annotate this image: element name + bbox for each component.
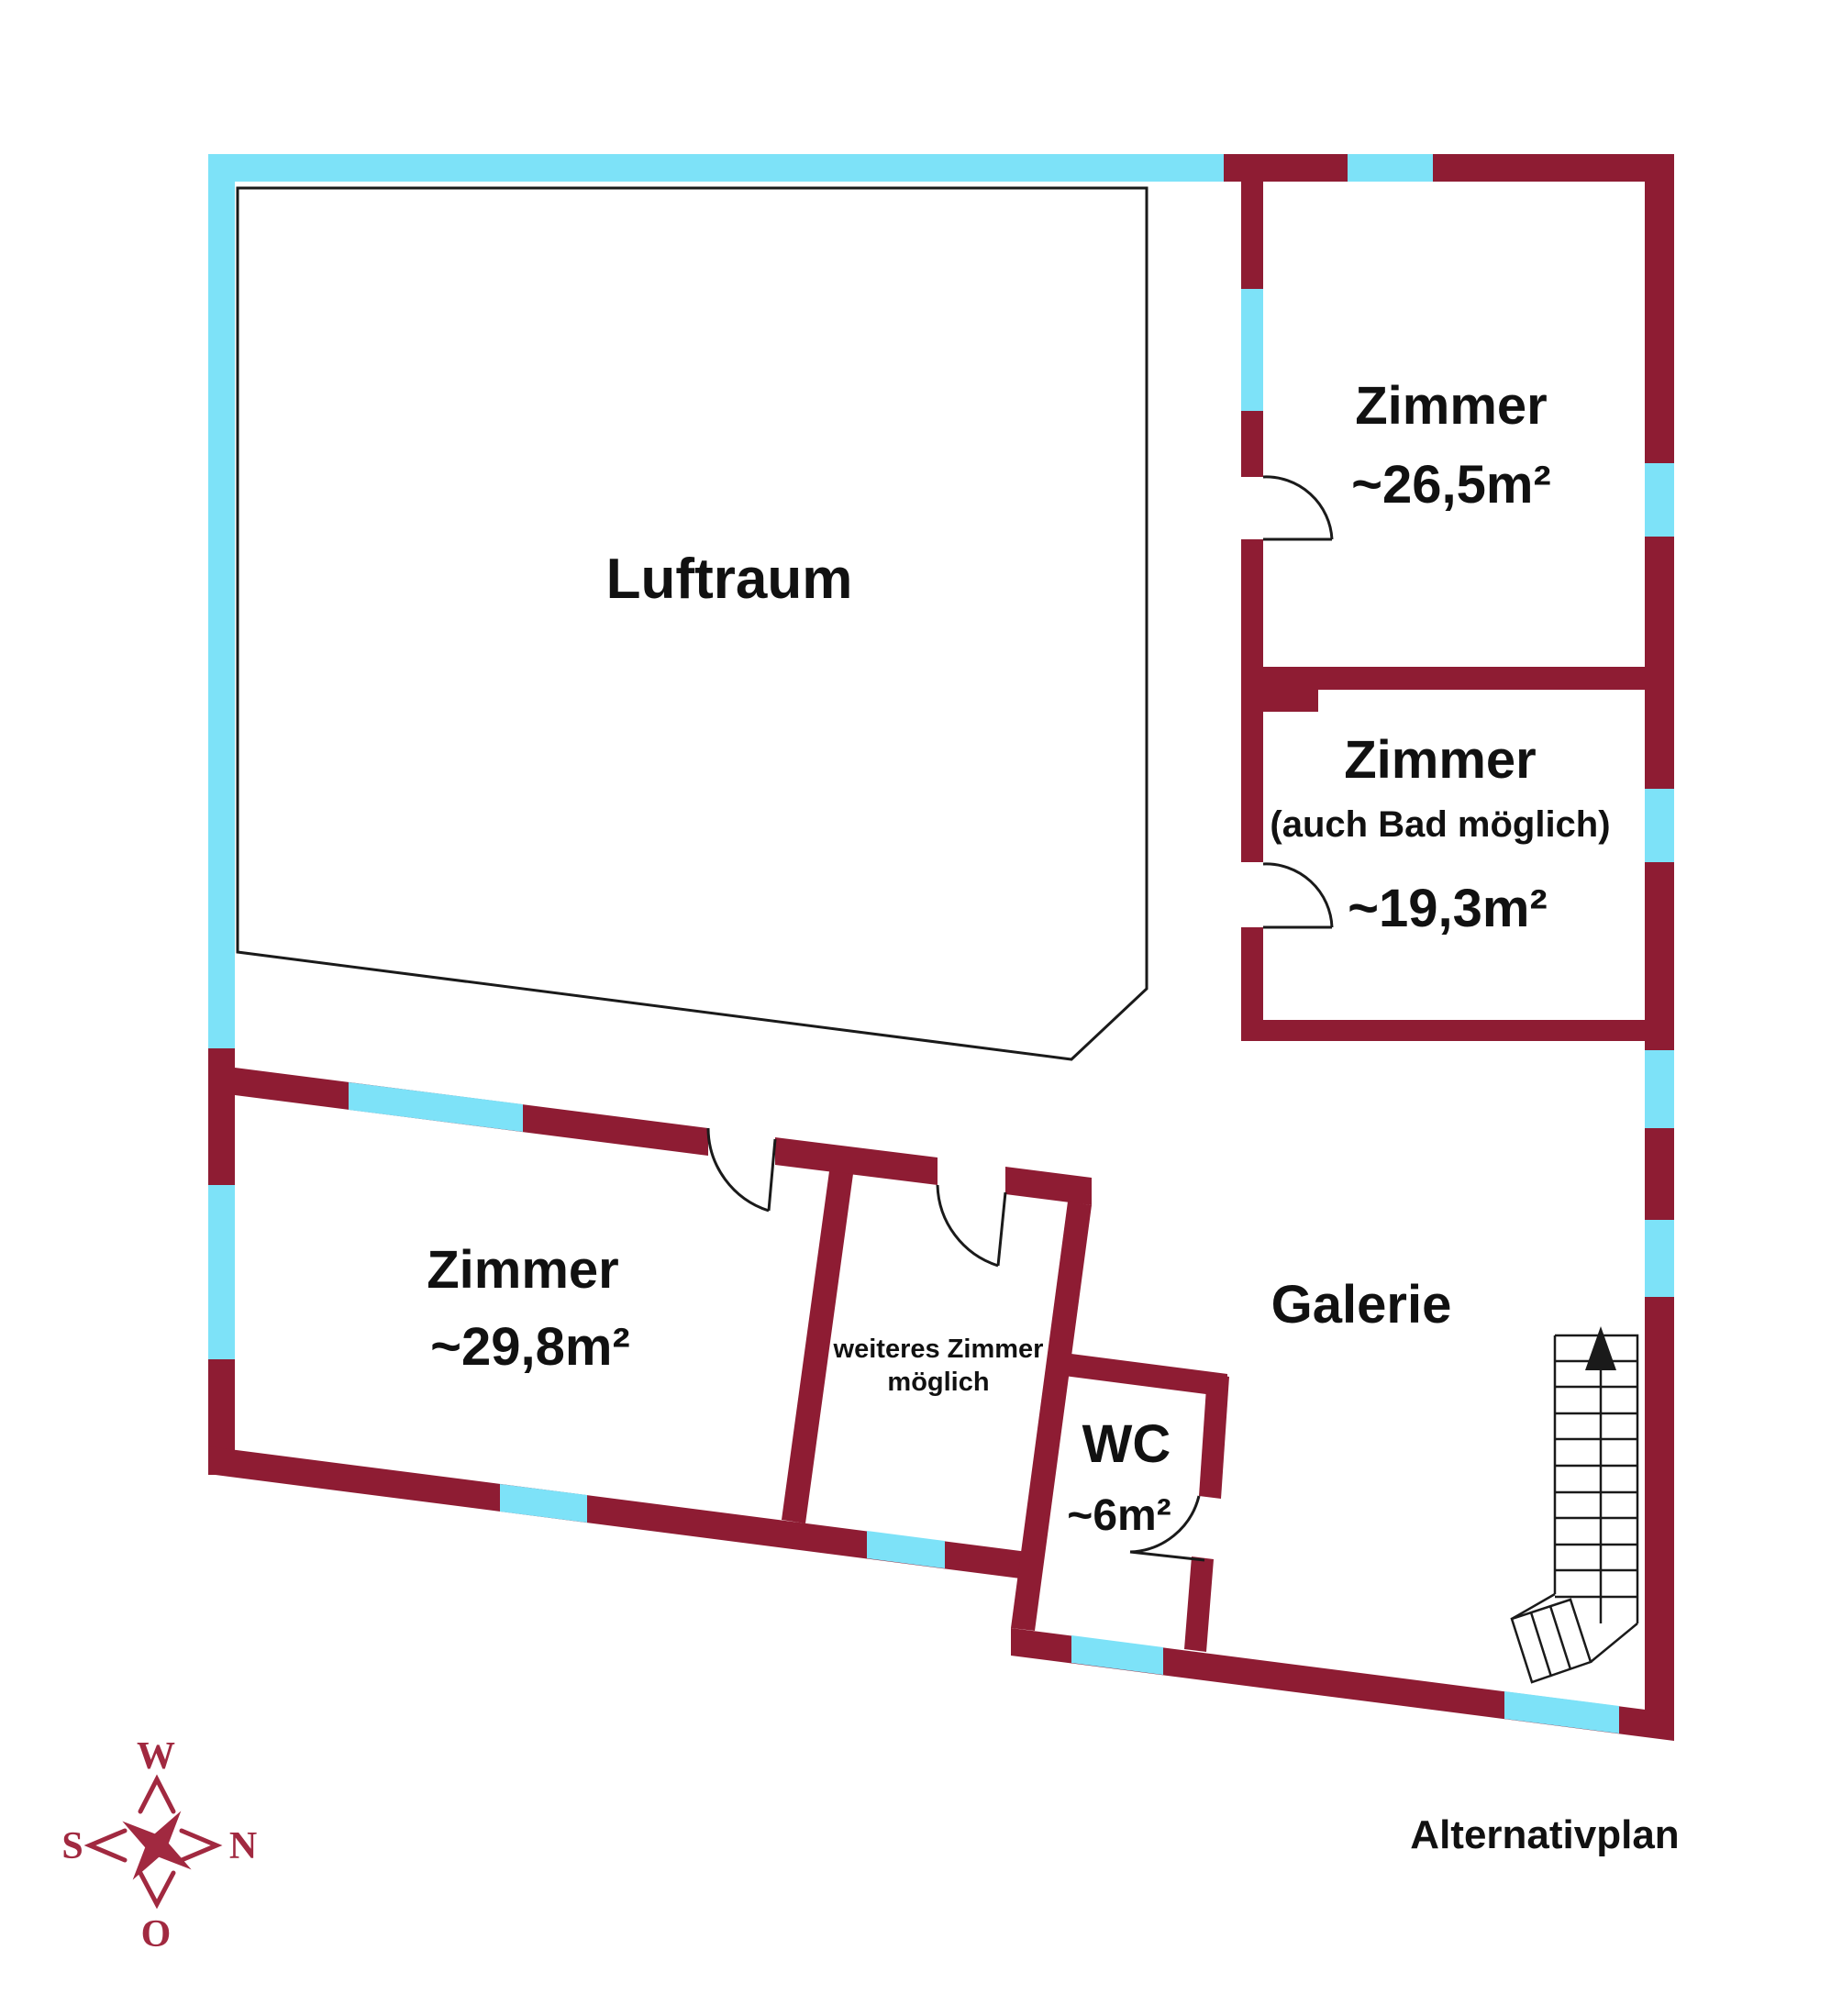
wall-right <box>1645 154 1674 1736</box>
zimmer19-note: (auch Bad möglich) <box>1270 804 1610 845</box>
room-galerie: Galerie <box>1271 1275 1452 1335</box>
wall-divider-notch <box>1241 667 1318 712</box>
compass-letter-north: N <box>229 1825 257 1867</box>
zimmer19-area: ~19,3m² <box>1348 879 1548 938</box>
plan-title: Alternativplan <box>1410 1812 1679 1857</box>
stairs-winder-steps <box>1531 1606 1570 1677</box>
wall-wc-right-stub <box>1184 1556 1214 1652</box>
window-right-3 <box>1645 1050 1674 1128</box>
compass-arrow-up-icon <box>140 1779 173 1811</box>
zimmer29-label: Zimmer <box>427 1240 619 1300</box>
compass-arrow-left-icon <box>90 1831 125 1860</box>
galerie-label: Galerie <box>1271 1275 1452 1335</box>
door-zimmer26-arc <box>1263 477 1332 539</box>
compass-arrow-right-icon <box>182 1831 216 1860</box>
compass-letter-west: W <box>137 1735 175 1778</box>
wc-area: ~6m² <box>1067 1491 1171 1540</box>
luftraum-outline <box>238 188 1147 1059</box>
stairs-treads <box>1555 1361 1637 1597</box>
stairs-direction-arrow <box>1585 1326 1616 1623</box>
wall-z29-top-b <box>775 1137 938 1185</box>
door-wc-leaf <box>1130 1552 1204 1560</box>
window-bottom-2 <box>867 1531 945 1568</box>
floor-plan-canvas: Luftraum Zimmer ~26,5m² Zimmer (auch Bad… <box>0 0 1842 2016</box>
window-right-4 <box>1645 1220 1674 1297</box>
compass-letter-east: O <box>141 1913 172 1955</box>
window-z29-top <box>349 1082 523 1132</box>
window-bottom-1 <box>500 1484 587 1523</box>
window-right-2 <box>1645 789 1674 862</box>
luftraum-label: Luftraum <box>606 548 853 611</box>
weiteres-label-line2: möglich <box>887 1368 989 1397</box>
room-wc: WC ~6m² <box>1064 1353 1229 1652</box>
weiteres-label-line1: weiteres Zimmer <box>833 1335 1044 1364</box>
stairs <box>1512 1326 1637 1682</box>
zimmer26-label: Zimmer <box>1355 376 1548 436</box>
window-bottom-4 <box>1504 1691 1619 1734</box>
door-zimmer29 <box>708 1128 775 1211</box>
rooms-right-column: Zimmer ~26,5m² Zimmer (auch Bad möglich)… <box>1241 182 1645 1041</box>
wall-zimmer19-bottom <box>1241 1020 1645 1041</box>
compass-star-icon <box>122 1811 191 1879</box>
compass-rose: W S N O <box>61 1735 257 1955</box>
door-zimmer29-arc <box>708 1128 769 1211</box>
door-zimmer19-arc <box>1263 864 1332 927</box>
room-luftraum: Luftraum <box>238 188 1147 1059</box>
door-zimmer19 <box>1263 864 1332 927</box>
window-left-lower <box>208 1185 235 1359</box>
wc-label: WC <box>1082 1414 1171 1474</box>
stairs-outline <box>1555 1335 1637 1623</box>
floor-plan-page: Luftraum Zimmer ~26,5m² Zimmer (auch Bad… <box>0 0 1842 2016</box>
stairs-turn-lines <box>1512 1594 1637 1662</box>
door-weiteres-leaf <box>998 1192 1005 1266</box>
window-top-small <box>1348 154 1433 182</box>
window-right-1 <box>1645 463 1674 537</box>
wall-weiteres-right <box>1011 1202 1092 1631</box>
compass-arrow-down-icon <box>140 1873 173 1904</box>
zimmer26-area: ~26,5m² <box>1351 455 1551 515</box>
compass-letter-south: S <box>61 1825 83 1867</box>
door-weiteres <box>938 1185 1005 1266</box>
window-left-upper <box>208 154 235 1048</box>
zimmer19-label: Zimmer <box>1344 730 1537 790</box>
door-zimmer29-leaf <box>769 1139 775 1211</box>
zimmer29-area: ~29,8m² <box>430 1317 630 1377</box>
window-rooms-left <box>1241 289 1263 411</box>
stairs-arrow-head-icon <box>1585 1326 1616 1370</box>
door-weiteres-arc <box>938 1185 998 1266</box>
wall-wc-top <box>1064 1353 1227 1397</box>
window-top-long <box>208 154 1224 182</box>
wall-z29-top-c <box>1005 1167 1092 1205</box>
door-zimmer26 <box>1263 477 1332 539</box>
